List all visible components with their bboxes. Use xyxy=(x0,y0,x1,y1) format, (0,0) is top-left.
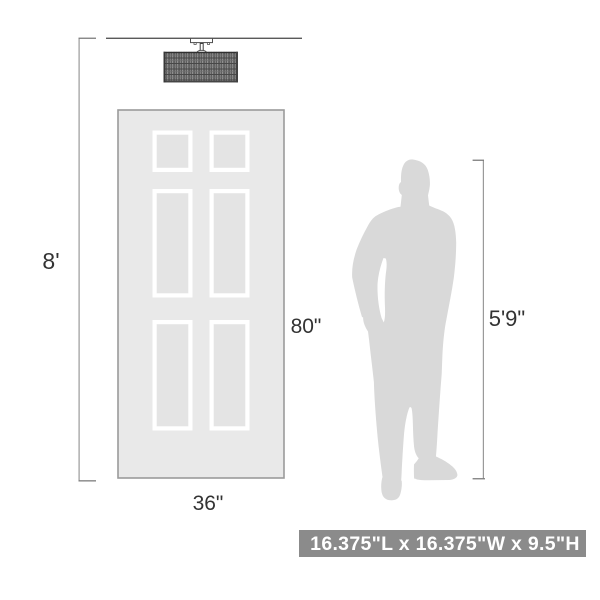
svg-text:80": 80" xyxy=(291,315,322,338)
svg-text:8': 8' xyxy=(42,248,59,274)
svg-text:16.375"L x 16.375"W x 9.5"H: 16.375"L x 16.375"W x 9.5"H xyxy=(310,533,580,555)
svg-text:5'9": 5'9" xyxy=(489,306,525,331)
svg-text:36": 36" xyxy=(193,492,224,515)
